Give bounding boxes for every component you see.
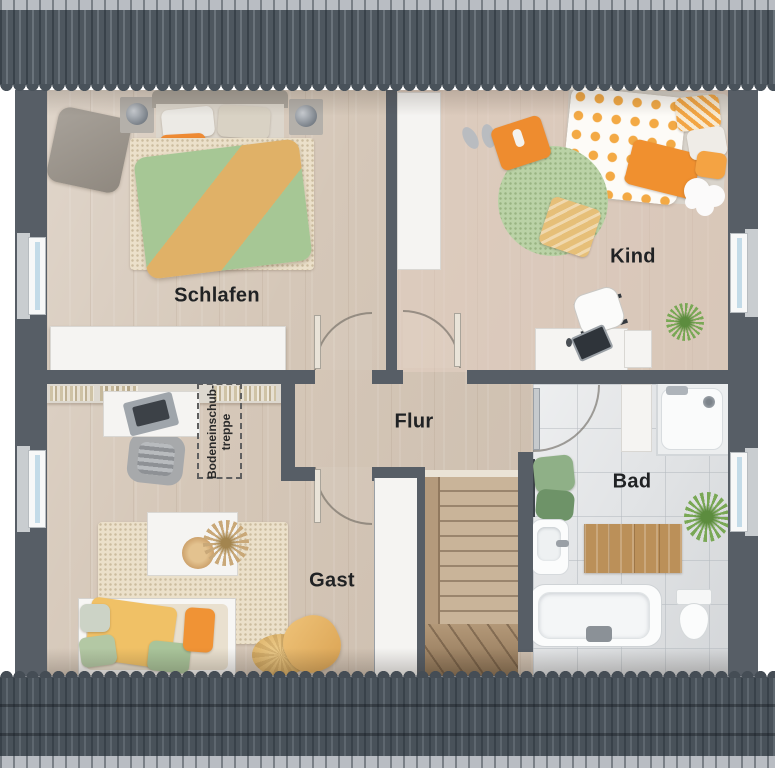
shower-drain xyxy=(703,396,715,408)
dried-plant xyxy=(203,520,249,566)
room-label-flur: Flur xyxy=(395,411,434,434)
wall-between-doors xyxy=(372,370,403,384)
mouse xyxy=(566,338,572,347)
potted-plant xyxy=(666,303,704,341)
door-leaf-gast xyxy=(314,469,321,523)
room-label-schlafen: Schlafen xyxy=(174,285,260,308)
duvet xyxy=(133,138,313,279)
sideboard xyxy=(50,326,286,372)
room-label-gast: Gast xyxy=(309,570,355,593)
kid-desk-cabinet xyxy=(624,330,652,368)
chair-cushion xyxy=(136,441,175,477)
wardrobe xyxy=(397,92,441,270)
stair-stringer xyxy=(425,477,440,624)
roof-bottom xyxy=(0,678,775,756)
door-leaf-kind xyxy=(454,313,461,367)
bathroom-plant xyxy=(684,492,730,542)
stairwell-wall-white xyxy=(374,478,418,676)
roof-top xyxy=(0,10,775,84)
stair-treads xyxy=(440,477,518,624)
attic-hatch-label: Bodeneinschub- treppe xyxy=(205,385,233,479)
window-glass xyxy=(737,238,742,308)
cloud-stool xyxy=(684,178,710,204)
roof-top-scalloped-edge xyxy=(0,84,775,94)
tub-faucet xyxy=(586,626,612,642)
window-glass xyxy=(737,457,742,527)
room-label-kind: Kind xyxy=(610,246,656,269)
stair-top-landing-edge xyxy=(425,470,518,477)
small-orange-pillow xyxy=(694,150,727,180)
outer-wall-right xyxy=(728,90,758,676)
towel xyxy=(532,454,576,494)
room-label-bad: Bad xyxy=(613,471,652,494)
roof-ridge-bottom xyxy=(0,756,775,768)
orange-pillow xyxy=(183,607,216,653)
window-glass xyxy=(35,242,40,310)
wall-stair-bad xyxy=(518,452,533,652)
wall-flur-west xyxy=(281,370,295,481)
window-glass xyxy=(35,455,40,523)
lamp-right xyxy=(295,105,317,127)
books xyxy=(50,386,94,401)
sage-pillow xyxy=(78,634,118,669)
wall-schlafen-kind xyxy=(386,90,397,384)
door-leaf-schlafen xyxy=(314,315,321,369)
attic-label-line1: Bodeneinschub- xyxy=(205,385,219,479)
attic-label-line2: treppe xyxy=(219,414,233,451)
stairwell-wall-top-edge xyxy=(374,470,425,478)
basin-faucet xyxy=(556,540,569,547)
floor-plan: Schlafen Kind Flur Gast Bad Bodeneinschu… xyxy=(0,0,775,768)
wooden-bath-mat xyxy=(584,524,682,573)
stairwell-wall-right-edge xyxy=(417,478,425,676)
bed-pillow xyxy=(217,104,271,140)
wall-horizontal-west xyxy=(47,370,315,384)
pale-pillow xyxy=(80,604,110,632)
roof-ridge-top xyxy=(0,0,775,10)
shower-fitting xyxy=(666,386,688,395)
wall-horizontal-east xyxy=(467,370,728,384)
roof-bottom-scalloped-edge xyxy=(0,668,775,678)
lamp-left xyxy=(126,103,148,125)
bathroom-cabinet xyxy=(621,384,652,452)
outer-wall-left xyxy=(15,90,47,676)
wall-gast-door-left xyxy=(281,467,315,481)
door-leaf-bad xyxy=(533,388,540,450)
towel xyxy=(535,488,575,521)
